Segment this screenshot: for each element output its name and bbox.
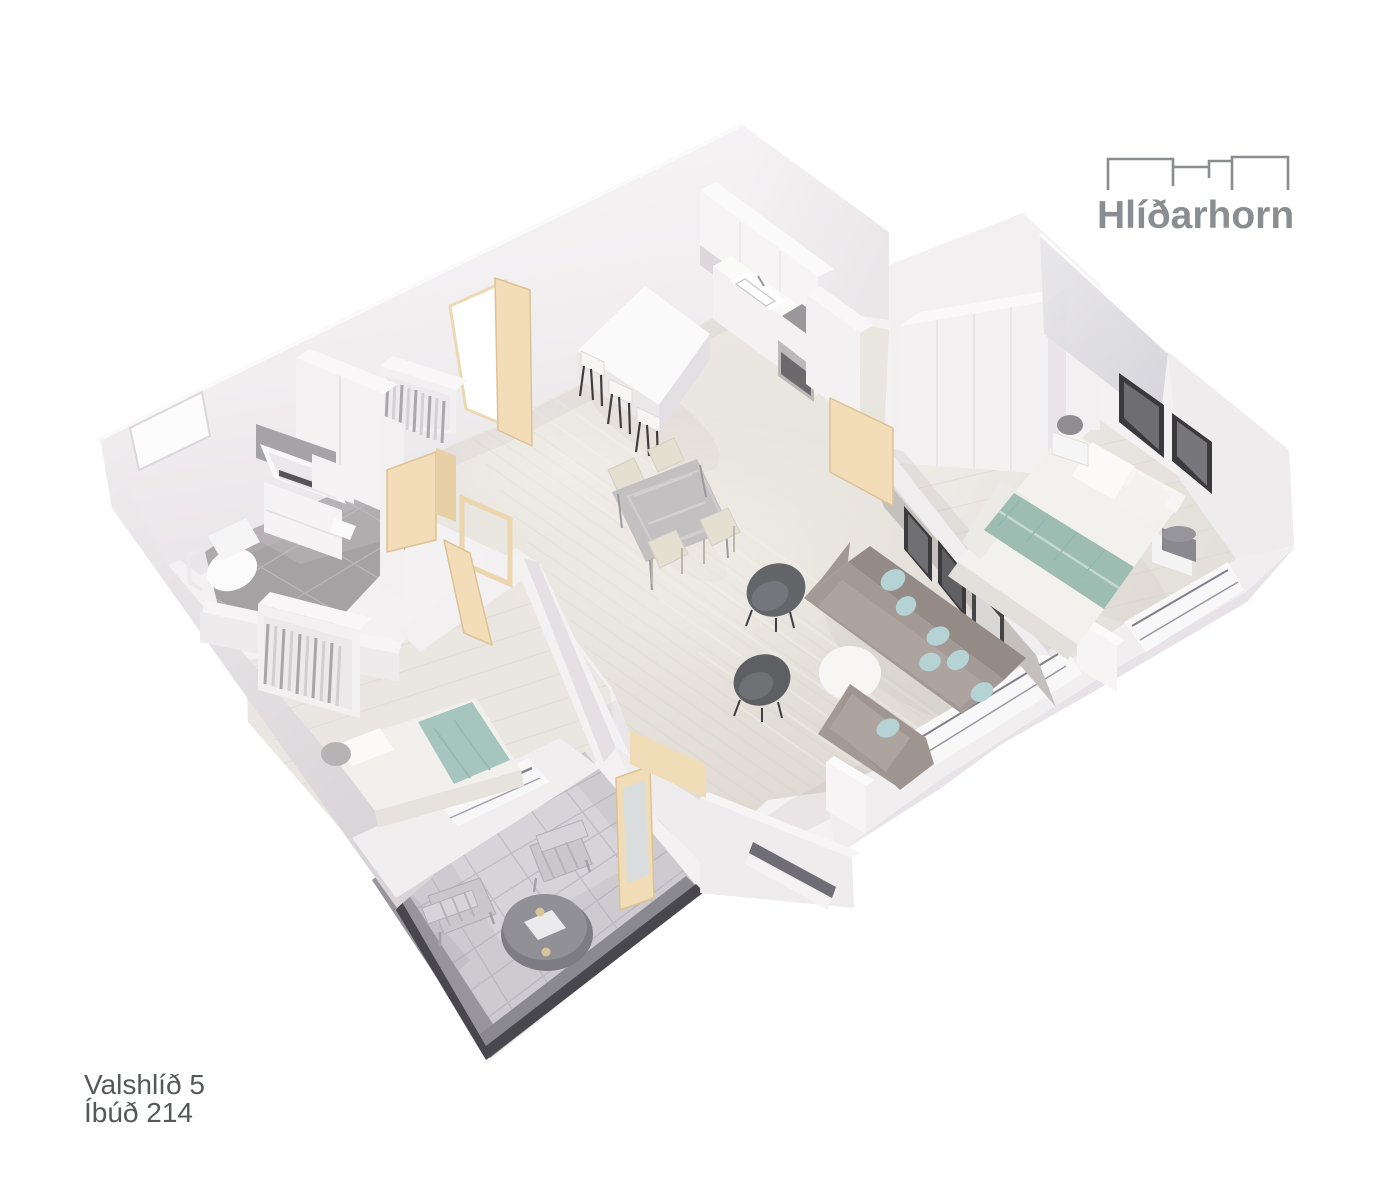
svg-text:Valshlíð 5: Valshlíð 5: [84, 1069, 205, 1100]
svg-text:Íbúð 214: Íbúð 214: [84, 1097, 193, 1128]
svg-text:Hlíðarhorn: Hlíðarhorn: [1097, 194, 1294, 237]
